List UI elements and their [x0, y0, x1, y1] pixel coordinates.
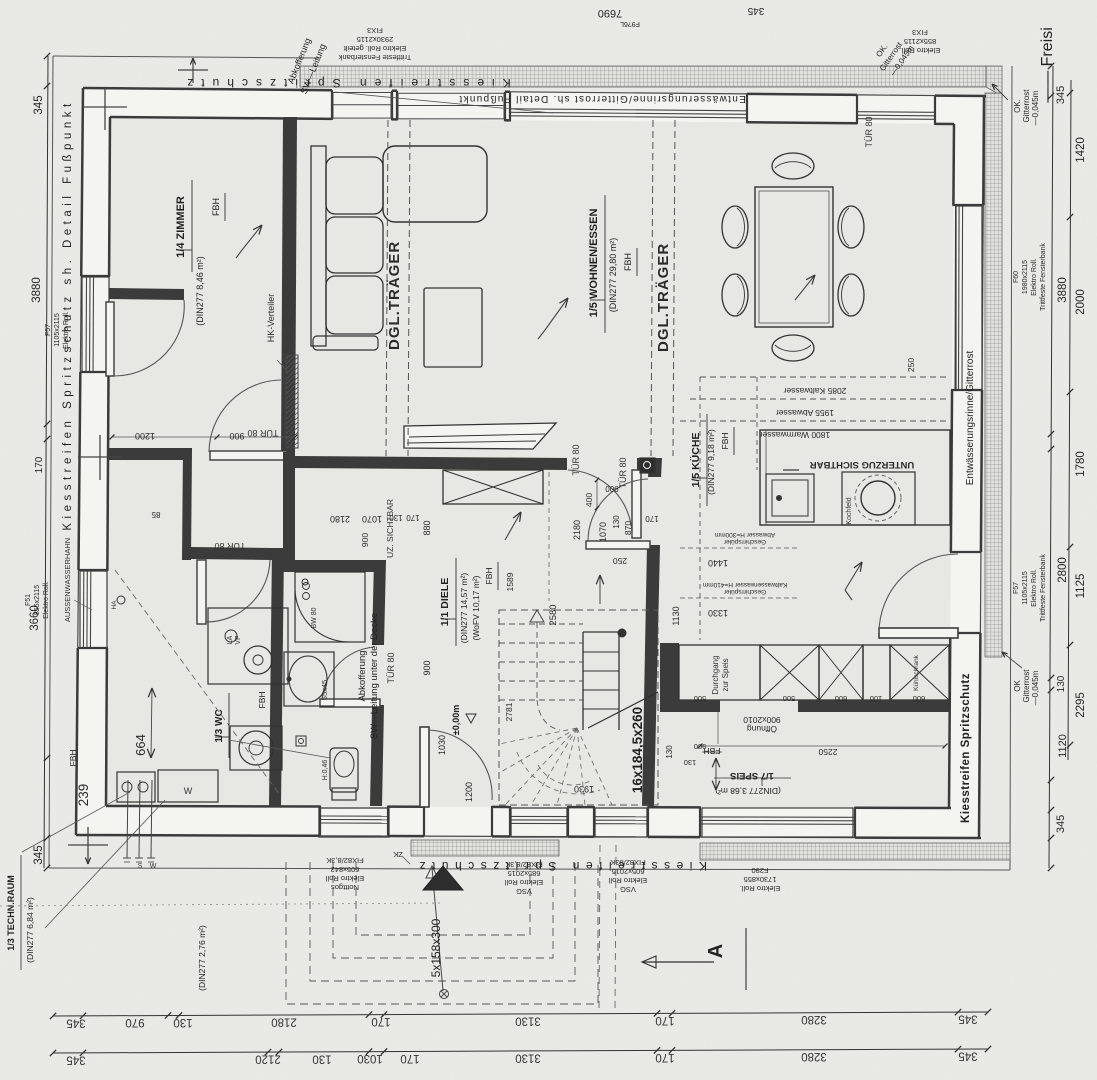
svg-text:Gitterrost: Gitterrost — [1022, 669, 1031, 703]
svg-text:FBH: FBH — [623, 253, 633, 271]
svg-text:130: 130 — [312, 1052, 331, 1064]
svg-text:Kiesstreifen Spritzschutz sh.: Kiesstreifen Spritzschutz sh. Detail Fuß… — [62, 99, 74, 530]
svg-text:FIX3: FIX3 — [912, 28, 928, 37]
svg-text:1730x855: 1730x855 — [744, 875, 777, 884]
svg-text:170: 170 — [655, 1051, 674, 1063]
svg-text:900: 900 — [605, 484, 619, 493]
svg-text:880: 880 — [422, 520, 432, 535]
svg-text:239: 239 — [76, 784, 91, 807]
svg-text:DGL.TRÄGER: DGL.TRÄGER — [655, 243, 672, 352]
svg-text:W: W — [150, 863, 157, 870]
svg-text:1420: 1420 — [1075, 137, 1087, 163]
svg-text:1/5 KÜCHE: 1/5 KÜCHE — [689, 433, 702, 488]
svg-text:170: 170 — [645, 514, 659, 523]
svg-text:1070: 1070 — [598, 522, 608, 542]
svg-text:1/5 WOHNEN/ESSEN: 1/5 WOHNEN/ESSEN — [588, 209, 600, 318]
svg-text:3130: 3130 — [515, 1014, 541, 1026]
svg-text:2180: 2180 — [572, 520, 582, 540]
svg-text:OK.: OK. — [1013, 99, 1022, 113]
svg-text:130: 130 — [612, 515, 621, 529]
svg-text:Durchgang: Durchgang — [711, 655, 720, 694]
svg-text:1780: 1780 — [1075, 451, 1087, 477]
svg-text:VP: VP — [235, 635, 242, 645]
svg-text:345: 345 — [1055, 815, 1067, 833]
svg-text:3130: 3130 — [515, 1051, 541, 1063]
svg-text:S: S — [138, 863, 143, 870]
svg-text:Elektro Roll. geteilt: Elektro Roll. geteilt — [343, 44, 406, 53]
svg-text:605x842: 605x842 — [331, 865, 360, 874]
svg-text:3880: 3880 — [1057, 277, 1069, 303]
svg-text:170: 170 — [655, 1014, 674, 1026]
svg-text:855x2115: 855x2115 — [34, 585, 41, 615]
svg-text:Gitterrost: Gitterrost — [1022, 89, 1031, 123]
svg-text:500: 500 — [783, 694, 796, 703]
svg-text:2180: 2180 — [271, 1016, 297, 1028]
svg-text:85: 85 — [151, 510, 160, 519]
svg-text:F60: F60 — [1013, 271, 1020, 283]
svg-text:1/3 WC: 1/3 WC — [214, 709, 225, 742]
svg-text:—— Freisi: —— Freisi — [1039, 27, 1056, 103]
svg-text:1/4 ZIMMER: 1/4 ZIMMER — [175, 196, 187, 258]
svg-text:FBH: FBH — [257, 692, 267, 709]
svg-text:7690: 7690 — [598, 7, 622, 19]
svg-text:HA: HA — [111, 600, 118, 610]
svg-text:Trittfeste Fensterbank: Trittfeste Fensterbank — [1040, 554, 1047, 622]
svg-text:±0,00m: ±0,00m — [451, 705, 461, 735]
svg-text:1030: 1030 — [437, 735, 447, 755]
svg-text:970: 970 — [125, 1016, 144, 1028]
svg-text:250: 250 — [906, 358, 916, 372]
svg-text:Elektro Roll.: Elektro Roll. — [43, 581, 50, 619]
svg-text:345: 345 — [747, 5, 764, 16]
svg-text:2085 Kaltwasser: 2085 Kaltwasser — [783, 386, 846, 396]
svg-text:1930: 1930 — [574, 784, 594, 794]
svg-text:Entwässerungsrinne/Gitterrost: Entwässerungsrinne/Gitterrost sh. Detail… — [458, 93, 746, 104]
svg-text:1130: 1130 — [671, 606, 681, 625]
svg-text:1120: 1120 — [1057, 734, 1069, 758]
svg-text:3280: 3280 — [801, 1013, 827, 1025]
svg-text:(DIN277 8,46 m²): (DIN277 8,46 m²) — [195, 256, 205, 326]
svg-text:Kochfeld: Kochfeld — [846, 497, 853, 524]
svg-text:5x158x300: 5x158x300 — [429, 918, 443, 977]
svg-text:3880: 3880 — [31, 277, 43, 303]
svg-text:1200: 1200 — [135, 431, 155, 441]
svg-text:900: 900 — [694, 742, 707, 751]
svg-text:F9?6L: F9?6L — [620, 20, 640, 27]
svg-text:345: 345 — [958, 1013, 977, 1025]
svg-text:2781: 2781 — [504, 702, 514, 721]
svg-text:VSG: VSG — [516, 887, 532, 896]
svg-text:2930x2115: 2930x2115 — [357, 35, 394, 44]
svg-text:SW—Leitung unter der Decke: SW—Leitung unter der Decke — [369, 613, 380, 739]
svg-text:55x45: 55x45 — [320, 680, 329, 700]
svg-text:100: 100 — [870, 694, 883, 703]
svg-text:FBH: FBH — [720, 433, 730, 450]
svg-text:BW 80: BW 80 — [311, 607, 318, 628]
svg-text:TÜR 80: TÜR 80 — [864, 116, 874, 147]
svg-text:2295: 2295 — [1075, 692, 1087, 718]
svg-text:(WoFV 10,17 m²): (WoFV 10,17 m²) — [471, 575, 481, 640]
svg-text:1980x2115: 1980x2115 — [1022, 260, 1029, 294]
svg-text:zur Speis: zur Speis — [721, 658, 730, 691]
svg-text:F51: F51 — [25, 594, 32, 606]
svg-text:130: 130 — [389, 513, 403, 522]
svg-text:900: 900 — [422, 660, 432, 675]
svg-text:Trittfeste Fensterbank: Trittfeste Fensterbank — [1040, 243, 1047, 311]
svg-text:(DIN277 9,18 m²): (DIN277 9,18 m²) — [706, 429, 716, 495]
svg-text:TÜR 80: TÜR 80 — [618, 457, 628, 488]
svg-text:TÜR 80: TÜR 80 — [571, 444, 581, 475]
svg-text:345: 345 — [66, 1053, 85, 1065]
svg-text:1105x2115: 1105x2115 — [54, 313, 61, 347]
svg-text:FIX82/8,3K: FIX82/8,3K — [326, 856, 364, 865]
svg-text:900: 900 — [229, 431, 244, 441]
svg-text:1589: 1589 — [505, 572, 515, 591]
svg-text:345: 345 — [958, 1050, 977, 1062]
svg-text:(DIN277 6,84 m²): (DIN277 6,84 m²) — [25, 897, 35, 963]
svg-text:170: 170 — [406, 513, 420, 522]
svg-text:600: 600 — [835, 694, 848, 703]
svg-text:130: 130 — [665, 745, 674, 759]
svg-text:1200: 1200 — [464, 782, 474, 802]
svg-text:170: 170 — [34, 456, 45, 473]
svg-text:170: 170 — [400, 1052, 419, 1064]
svg-text:Elektro Roll.: Elektro Roll. — [1031, 569, 1038, 607]
svg-text:130: 130 — [1056, 675, 1067, 692]
svg-text:250: 250 — [613, 556, 627, 566]
svg-text:—0,045m: —0,045m — [1031, 670, 1040, 705]
svg-text:400: 400 — [584, 493, 594, 507]
svg-text:130: 130 — [684, 758, 697, 767]
svg-text:FIX3: FIX3 — [367, 26, 383, 35]
svg-text:HK-Verteiler: HK-Verteiler — [266, 294, 276, 343]
svg-text:Elektro Roll.: Elektro Roll. — [740, 884, 780, 893]
svg-text:LA: LA — [227, 635, 234, 644]
svg-text:1105x2115: 1105x2115 — [1022, 571, 1029, 605]
svg-text:2120: 2120 — [255, 1053, 281, 1065]
svg-text:1030: 1030 — [357, 1052, 383, 1064]
svg-text:(DIN277 2,76 m²): (DIN277 2,76 m²) — [197, 925, 207, 991]
svg-text:900: 900 — [360, 533, 370, 547]
svg-text:1440: 1440 — [708, 558, 728, 568]
svg-text:Entwässerungsrinne/Gitterrost: Entwässerungsrinne/Gitterrost — [965, 351, 976, 486]
svg-text:1/7 SPEIS: 1/7 SPEIS — [730, 770, 774, 781]
svg-text:1/3 TECHN.RAUM: 1/3 TECHN.RAUM — [6, 875, 16, 951]
svg-text:1800 Warmwasser: 1800 Warmwasser — [760, 430, 831, 440]
svg-text:2000: 2000 — [1075, 289, 1087, 315]
svg-text:Abwasser H=300mm: Abwasser H=300mm — [715, 531, 776, 538]
svg-text:ZK: ZK — [393, 850, 403, 859]
svg-text:A: A — [705, 944, 727, 958]
svg-text:1070: 1070 — [362, 514, 382, 524]
svg-text:AUSSENWASSERHAHN: AUSSENWASSERHAHN — [63, 538, 72, 622]
svg-text:2180: 2180 — [330, 514, 350, 524]
svg-text:345: 345 — [1055, 86, 1067, 104]
svg-text:345: 345 — [33, 95, 45, 114]
svg-text:F57: F57 — [1013, 582, 1020, 594]
svg-text:Kiesstreifen Spritzschutz: Kiesstreifen Spritzschutz — [413, 859, 707, 873]
svg-text:2250: 2250 — [818, 747, 837, 757]
svg-text:VSG: VSG — [620, 885, 636, 894]
svg-text:(DIN277 3,68 m²): (DIN277 3,68 m²) — [715, 786, 781, 796]
svg-text:OK: OK — [1013, 680, 1022, 692]
svg-text:Notttgos: Notttgos — [331, 883, 359, 892]
svg-text:FBH: FBH — [68, 750, 78, 767]
svg-text:130: 130 — [173, 1016, 192, 1028]
svg-text:UZ. SICHTBAR: UZ. SICHTBAR — [385, 499, 395, 558]
svg-text:FBH: FBH — [484, 568, 494, 585]
svg-text:Elektro Roll: Elektro Roll — [505, 878, 544, 887]
svg-text:345: 345 — [33, 845, 45, 864]
svg-text:870: 870 — [623, 521, 633, 535]
svg-text:F57: F57 — [45, 324, 52, 336]
svg-text:Elektro Roll.: Elektro Roll. — [1031, 258, 1038, 296]
svg-text:TÜR 80: TÜR 80 — [386, 652, 396, 683]
svg-text:345: 345 — [66, 1016, 85, 1028]
svg-text:3280: 3280 — [801, 1050, 827, 1062]
svg-text:F290: F290 — [751, 866, 768, 875]
svg-text:Geschirrspüler: Geschirrspüler — [723, 538, 766, 545]
svg-text:TÜR 80: TÜR 80 — [247, 428, 278, 438]
svg-text:Trittfeste Fensterbank: Trittfeste Fensterbank — [338, 53, 411, 62]
svg-text:Abkofferung: Abkofferung — [357, 650, 368, 701]
svg-text:Kiesstreifen Spritzschutz: Kiesstreifen Spritzschutz — [179, 76, 510, 90]
svg-text:FBH: FBH — [211, 198, 221, 216]
svg-text:Kühlschrank: Kühlschrank — [913, 654, 920, 691]
svg-text:UNTERZUG SICHTBAR: UNTERZUG SICHTBAR — [810, 459, 915, 470]
svg-text:Elektro Roll: Elektro Roll — [326, 874, 365, 883]
svg-text:TÜR 80: TÜR 80 — [214, 541, 245, 551]
svg-text:170: 170 — [371, 1015, 390, 1027]
svg-text:16x184,5x260: 16x184,5x260 — [630, 707, 645, 793]
svg-text:600: 600 — [913, 694, 926, 703]
svg-text:1125: 1125 — [1075, 574, 1087, 599]
svg-text:1330: 1330 — [708, 608, 728, 618]
svg-text:(DIN277 29,80 m²): (DIN277 29,80 m²) — [608, 238, 618, 313]
svg-text:664: 664 — [133, 734, 148, 756]
svg-text:W: W — [184, 786, 193, 796]
svg-text:Elektro Roll: Elektro Roll — [609, 876, 648, 885]
svg-text:1955 Abwasser: 1955 Abwasser — [776, 408, 834, 418]
svg-text:Kaltwasserwasser H=410mm: Kaltwasserwasser H=410mm — [703, 581, 787, 588]
svg-text:(DIN277 14,57 m²): (DIN277 14,57 m²) — [459, 573, 469, 644]
svg-text:2800: 2800 — [1057, 557, 1069, 583]
svg-text:900x2010: 900x2010 — [743, 715, 781, 725]
svg-text:500: 500 — [694, 694, 707, 703]
svg-text:2580: 2580 — [548, 604, 559, 625]
svg-text:H:0,46: H:0,46 — [322, 760, 329, 781]
svg-text:Geschirrspüler: Geschirrspüler — [723, 588, 766, 595]
svg-text:Kiesstreifen Spritzschutz: Kiesstreifen Spritzschutz — [960, 673, 972, 823]
svg-text:DGL.TRÄGER: DGL.TRÄGER — [386, 241, 403, 350]
